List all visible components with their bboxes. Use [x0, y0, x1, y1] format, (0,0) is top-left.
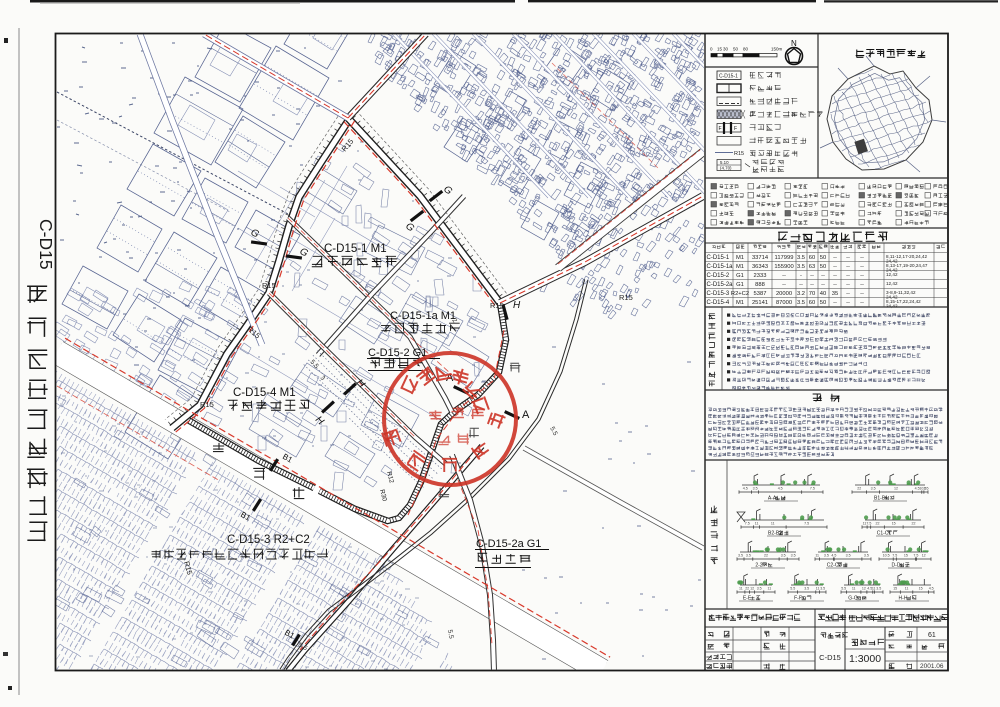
svg-text:R15: R15: [262, 281, 276, 290]
svg-text:7.5: 7.5: [810, 487, 815, 491]
svg-text:--: --: [846, 300, 850, 306]
svg-text:--: --: [799, 282, 803, 288]
svg-text:50: 50: [820, 255, 826, 261]
svg-text:C-D15-3 R2+C2: C-D15-3 R2+C2: [227, 534, 310, 546]
svg-text:--: --: [846, 255, 850, 261]
svg-text:--: --: [810, 273, 814, 279]
svg-text:3.5: 3.5: [797, 255, 805, 261]
svg-text:5.5: 5.5: [790, 587, 795, 591]
svg-text:12,42: 12,42: [886, 272, 898, 277]
svg-text:25141: 25141: [752, 300, 768, 306]
svg-text:C-D15-2a: C-D15-2a: [707, 282, 734, 288]
svg-text:G-G: G-G: [848, 596, 858, 602]
svg-text:F: F: [719, 126, 722, 132]
svg-text:3.5: 3.5: [924, 487, 929, 491]
svg-text:12: 12: [894, 487, 898, 491]
svg-text:10.5: 10.5: [883, 554, 890, 558]
svg-text:3.5: 3.5: [781, 554, 786, 558]
svg-text:4.5: 4.5: [743, 487, 748, 491]
svg-text:12,42: 12,42: [886, 281, 898, 286]
svg-text:1:3000: 1:3000: [849, 653, 881, 665]
svg-text:3.5: 3.5: [824, 554, 829, 558]
svg-text:11: 11: [816, 587, 820, 591]
svg-text:22: 22: [876, 522, 880, 526]
svg-text:R15: R15: [734, 151, 744, 157]
svg-text:--: --: [810, 282, 814, 288]
svg-text:D-D: D-D: [892, 563, 901, 569]
svg-text:50: 50: [733, 47, 739, 52]
svg-text:C-D15-2 G1: C-D15-2 G1: [368, 347, 427, 359]
svg-text:--: --: [860, 291, 864, 297]
svg-text:63: 63: [809, 264, 815, 270]
svg-text:61: 61: [928, 632, 936, 639]
svg-text:--: --: [782, 273, 786, 279]
svg-text:11: 11: [768, 587, 772, 591]
svg-text:15: 15: [919, 587, 923, 591]
svg-text:33714: 33714: [752, 255, 769, 261]
svg-text:M1: M1: [736, 300, 744, 306]
svg-text:36343: 36343: [752, 264, 768, 270]
svg-text:3.5: 3.5: [753, 487, 758, 491]
svg-text:B1-B1: B1-B1: [874, 496, 888, 502]
svg-text:--: --: [860, 282, 864, 288]
svg-text:C-D15-4: C-D15-4: [707, 300, 730, 306]
svg-text:F-F: F-F: [794, 596, 802, 602]
svg-text:R2+C2: R2+C2: [731, 291, 749, 297]
svg-text:11: 11: [852, 587, 856, 591]
svg-text:C-D15: C-D15: [819, 653, 841, 662]
svg-text:--: --: [833, 255, 837, 261]
svg-text:--: --: [846, 291, 850, 297]
svg-text:R15: R15: [490, 301, 504, 310]
svg-text:C-D15-4 M1: C-D15-4 M1: [233, 387, 296, 399]
svg-text:C2-C2: C2-C2: [827, 563, 842, 569]
svg-text:3.2: 3.2: [797, 291, 805, 297]
svg-text:7.5: 7.5: [892, 554, 897, 558]
svg-text:20000: 20000: [776, 291, 792, 297]
svg-text:11: 11: [771, 522, 775, 526]
svg-text:G1: G1: [736, 273, 744, 279]
svg-text:--: --: [846, 273, 850, 279]
svg-text:H-H: H-H: [899, 596, 908, 602]
svg-text:888: 888: [755, 282, 765, 288]
svg-text:R15: R15: [200, 400, 214, 409]
svg-text:2-2: 2-2: [755, 563, 762, 569]
svg-text:C-D15-2a G1: C-D15-2a G1: [476, 538, 541, 550]
svg-text:H: H: [513, 300, 521, 311]
svg-text:C-D15-2: C-D15-2: [707, 273, 730, 279]
svg-text:150m: 150m: [771, 47, 783, 52]
svg-text:--: --: [846, 264, 850, 270]
svg-text:87000: 87000: [776, 300, 792, 306]
svg-text:7.5: 7.5: [745, 522, 750, 526]
svg-text:4.5: 4.5: [929, 587, 934, 591]
svg-text:80: 80: [743, 47, 749, 52]
svg-text:C-D15-1a M1: C-D15-1a M1: [390, 310, 456, 322]
svg-text:2333: 2333: [754, 273, 767, 279]
svg-text:--: --: [821, 273, 825, 279]
svg-text:11: 11: [755, 522, 759, 526]
svg-text:5.5: 5.5: [841, 587, 846, 591]
svg-text:22: 22: [764, 554, 768, 558]
svg-text:12: 12: [922, 554, 926, 558]
svg-text:30: 30: [723, 47, 729, 52]
svg-text:50: 50: [820, 300, 826, 306]
svg-text:--: --: [860, 264, 864, 270]
svg-text:3.5: 3.5: [871, 487, 876, 491]
svg-text:--: --: [860, 300, 864, 306]
svg-text:155900: 155900: [774, 264, 793, 270]
svg-text:M1: M1: [736, 255, 744, 261]
svg-text:50: 50: [820, 264, 826, 270]
svg-text:60: 60: [809, 255, 815, 261]
svg-text:3.5: 3.5: [738, 554, 743, 558]
svg-text:3.5: 3.5: [846, 554, 851, 558]
svg-text:3.5: 3.5: [820, 587, 825, 591]
svg-text:7.5: 7.5: [913, 554, 918, 558]
svg-text:11: 11: [905, 587, 909, 591]
svg-text:3.5: 3.5: [791, 554, 796, 558]
svg-text:F: F: [734, 126, 737, 132]
svg-text:3.5: 3.5: [876, 587, 881, 591]
svg-text:3.5: 3.5: [757, 587, 762, 591]
svg-text:C-D15-1: C-D15-1: [707, 255, 730, 261]
svg-text:--: --: [860, 255, 864, 261]
svg-text:5387: 5387: [754, 291, 767, 297]
svg-text:15: 15: [717, 47, 723, 52]
svg-text:C-D15: C-D15: [36, 219, 56, 270]
svg-text:C1-C1: C1-C1: [877, 531, 892, 537]
svg-text:C-D15-1: C-D15-1: [719, 74, 738, 80]
svg-text:12: 12: [750, 587, 754, 591]
svg-text:M1: M1: [736, 264, 744, 270]
svg-text:4.5: 4.5: [778, 487, 783, 491]
svg-text:--: --: [821, 282, 825, 288]
svg-text:3.5: 3.5: [797, 264, 805, 270]
svg-text:--: --: [846, 282, 850, 288]
svg-text:15: 15: [893, 587, 897, 591]
svg-text:15: 15: [892, 522, 896, 526]
svg-text:R15: R15: [619, 293, 633, 302]
svg-text:3.5: 3.5: [804, 587, 809, 591]
svg-text:--: --: [833, 300, 837, 306]
svg-text:4.5: 4.5: [831, 554, 836, 558]
svg-text:3.5: 3.5: [864, 554, 869, 558]
svg-text:11: 11: [739, 587, 743, 591]
svg-text:A: A: [522, 409, 530, 421]
svg-text:C-D15-1a: C-D15-1a: [707, 264, 734, 270]
svg-text:60: 60: [809, 300, 815, 306]
svg-text:3.5: 3.5: [797, 300, 805, 306]
svg-text:3.5: 3.5: [746, 554, 751, 558]
svg-text:22: 22: [745, 587, 749, 591]
svg-text:7.5: 7.5: [866, 522, 871, 526]
svg-text:-: -: [800, 273, 802, 279]
svg-text:A-A: A-A: [768, 496, 777, 502]
svg-text:12: 12: [862, 587, 866, 591]
svg-text:G1: G1: [736, 282, 744, 288]
svg-text:11: 11: [872, 587, 876, 591]
svg-text:15: 15: [904, 554, 908, 558]
svg-text:22: 22: [912, 522, 916, 526]
svg-text:22: 22: [857, 487, 861, 491]
svg-text:--: --: [833, 264, 837, 270]
svg-text:40: 40: [820, 291, 826, 297]
svg-text:35: 35: [832, 291, 838, 297]
svg-text:E-E: E-E: [743, 596, 752, 602]
svg-text:C-D15-3: C-D15-3: [707, 291, 730, 297]
svg-text:--: --: [833, 273, 837, 279]
svg-text:C-D15-1 M1: C-D15-1 M1: [324, 243, 387, 255]
svg-text:--: --: [833, 282, 837, 288]
svg-text:B2-B2: B2-B2: [768, 531, 782, 537]
svg-text:N: N: [791, 39, 797, 48]
svg-text:117999: 117999: [775, 255, 794, 261]
svg-text:(4.70): (4.70): [720, 166, 732, 171]
svg-text:24,42: 24,42: [886, 303, 898, 308]
svg-text:5.10: 5.10: [720, 160, 729, 165]
svg-text:2001.06: 2001.06: [920, 663, 944, 670]
svg-text:--: --: [860, 273, 864, 279]
svg-text:11: 11: [815, 554, 819, 558]
svg-text:7.5: 7.5: [804, 522, 809, 526]
svg-text:70: 70: [809, 291, 815, 297]
svg-text:--: --: [782, 282, 786, 288]
